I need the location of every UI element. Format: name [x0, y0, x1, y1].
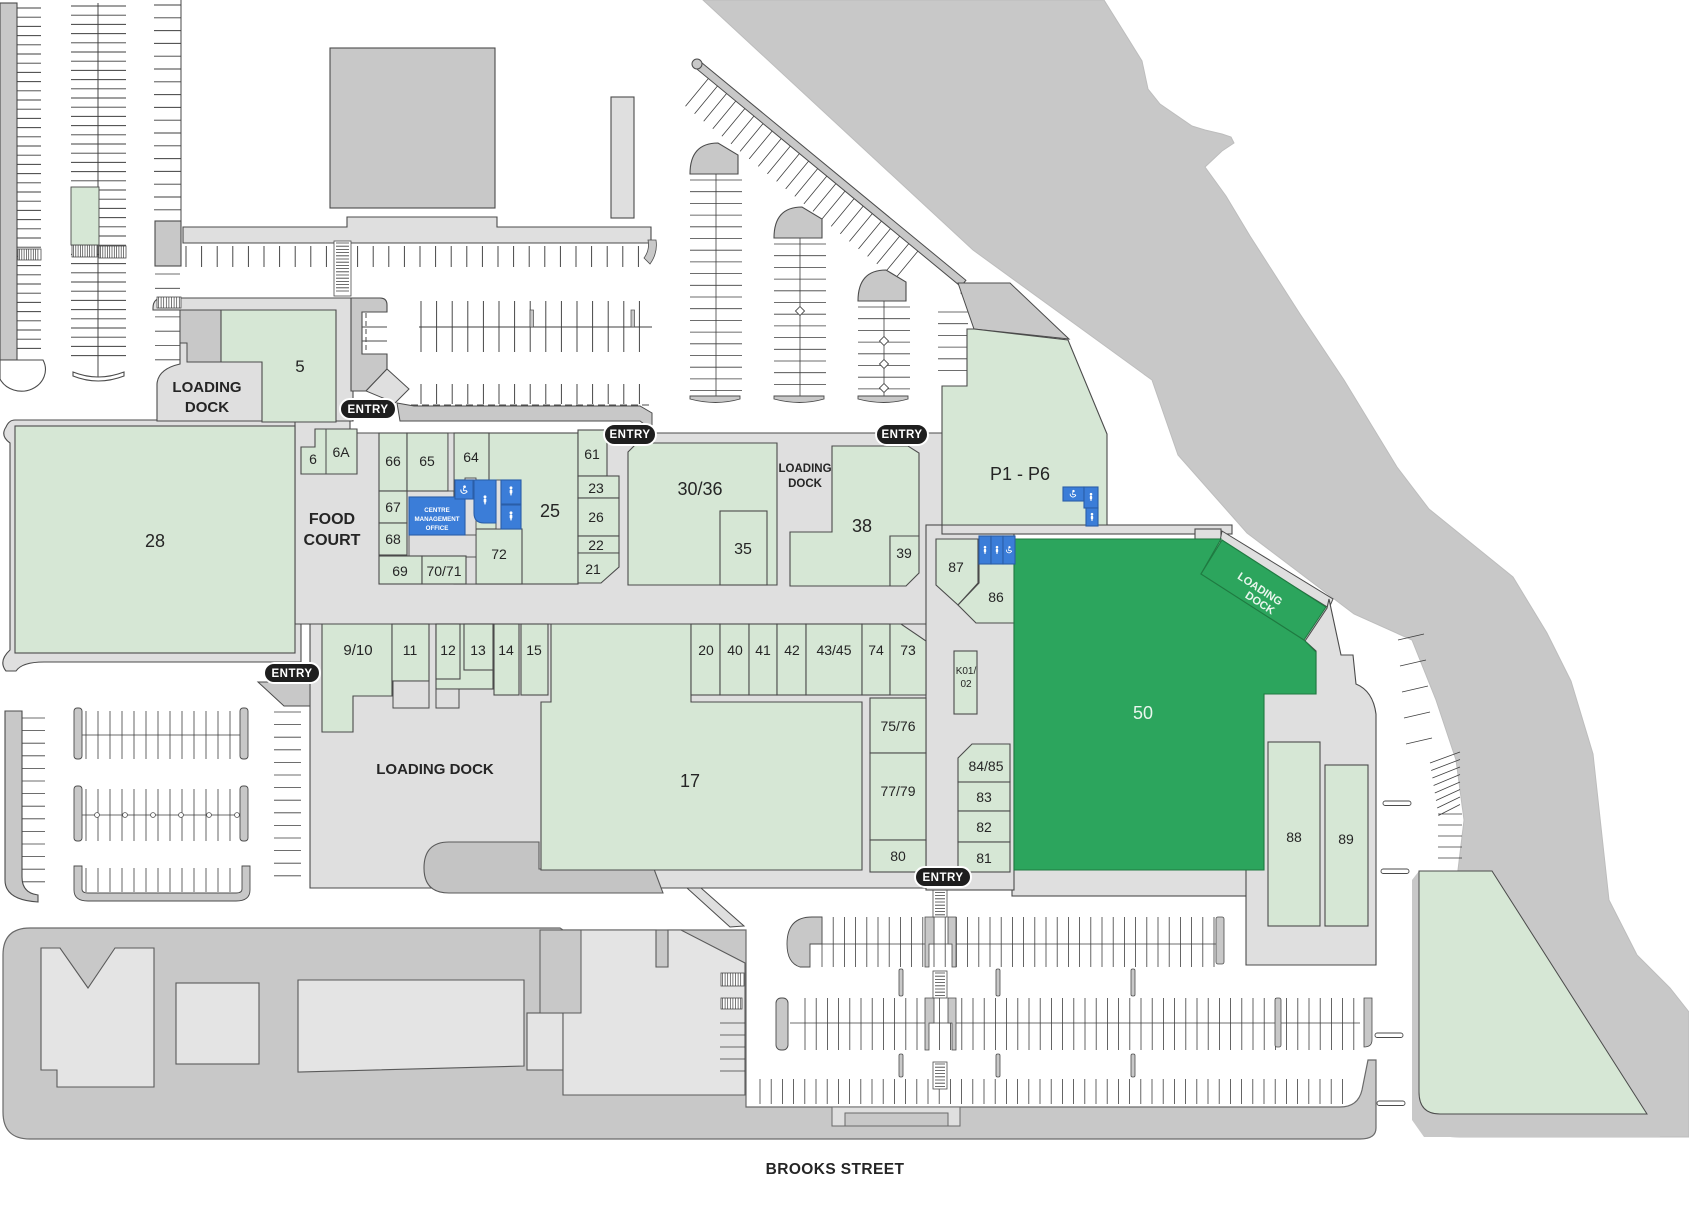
svg-text:LOADING: LOADING — [172, 379, 241, 396]
svg-text:41: 41 — [755, 642, 771, 658]
svg-text:87: 87 — [948, 559, 964, 575]
svg-text:P1 - P6: P1 - P6 — [990, 464, 1050, 484]
svg-text:23: 23 — [588, 480, 604, 496]
svg-text:FOOD: FOOD — [309, 511, 355, 528]
svg-text:OFFICE: OFFICE — [426, 525, 449, 532]
svg-text:11: 11 — [403, 642, 418, 658]
svg-text:80: 80 — [890, 848, 906, 864]
svg-text:ENTRY: ENTRY — [347, 404, 388, 416]
svg-text:MANAGEMENT: MANAGEMENT — [414, 516, 459, 523]
svg-text:40: 40 — [727, 642, 743, 658]
svg-text:30/36: 30/36 — [677, 479, 722, 499]
svg-text:82: 82 — [976, 819, 992, 835]
svg-text:74: 74 — [868, 642, 884, 658]
svg-text:DOCK: DOCK — [185, 399, 229, 416]
svg-text:65: 65 — [419, 453, 435, 469]
svg-text:38: 38 — [852, 516, 872, 536]
svg-text:70/71: 70/71 — [426, 563, 461, 579]
svg-text:61: 61 — [584, 446, 600, 462]
svg-text:14: 14 — [498, 642, 514, 658]
svg-text:35: 35 — [734, 541, 752, 558]
svg-text:25: 25 — [540, 501, 560, 521]
svg-text:02: 02 — [960, 679, 972, 690]
svg-text:69: 69 — [392, 563, 408, 579]
svg-text:64: 64 — [463, 449, 479, 465]
svg-text:21: 21 — [585, 561, 601, 577]
svg-text:15: 15 — [526, 642, 542, 658]
svg-text:68: 68 — [385, 531, 401, 547]
svg-text:73: 73 — [900, 642, 916, 658]
svg-text:13: 13 — [470, 642, 486, 658]
svg-text:28: 28 — [145, 531, 165, 551]
svg-text:72: 72 — [491, 546, 507, 562]
svg-text:75/76: 75/76 — [880, 718, 915, 734]
svg-text:ENTRY: ENTRY — [609, 429, 650, 441]
svg-text:DOCK: DOCK — [788, 478, 823, 490]
svg-text:CENTRE: CENTRE — [424, 507, 449, 514]
svg-text:50: 50 — [1133, 703, 1153, 723]
svg-text:89: 89 — [1338, 831, 1354, 847]
svg-text:88: 88 — [1286, 829, 1302, 845]
svg-text:LOADING DOCK: LOADING DOCK — [376, 761, 494, 778]
svg-text:20: 20 — [698, 642, 714, 658]
svg-text:42: 42 — [784, 642, 800, 658]
svg-text:43/45: 43/45 — [816, 642, 851, 658]
svg-text:83: 83 — [976, 789, 992, 805]
svg-text:6: 6 — [309, 451, 317, 467]
svg-text:17: 17 — [680, 771, 700, 791]
svg-text:26: 26 — [588, 509, 604, 525]
svg-text:K01/: K01/ — [956, 666, 977, 677]
svg-text:LOADING: LOADING — [778, 463, 831, 475]
svg-text:BROOKS STREET: BROOKS STREET — [766, 1161, 905, 1178]
svg-text:5: 5 — [295, 357, 304, 376]
svg-text:9/10: 9/10 — [343, 642, 372, 659]
svg-text:6A: 6A — [332, 444, 350, 460]
svg-text:ENTRY: ENTRY — [271, 668, 312, 680]
svg-text:66: 66 — [385, 453, 401, 469]
svg-text:86: 86 — [988, 589, 1004, 605]
svg-text:84/85: 84/85 — [968, 758, 1003, 774]
svg-text:77/79: 77/79 — [880, 783, 915, 799]
svg-text:ENTRY: ENTRY — [881, 429, 922, 441]
svg-text:39: 39 — [896, 545, 912, 561]
svg-text:22: 22 — [588, 537, 604, 553]
svg-text:81: 81 — [976, 850, 992, 866]
svg-text:COURT: COURT — [304, 532, 361, 549]
svg-text:12: 12 — [440, 642, 456, 658]
svg-text:67: 67 — [385, 499, 401, 515]
svg-text:ENTRY: ENTRY — [922, 872, 963, 884]
